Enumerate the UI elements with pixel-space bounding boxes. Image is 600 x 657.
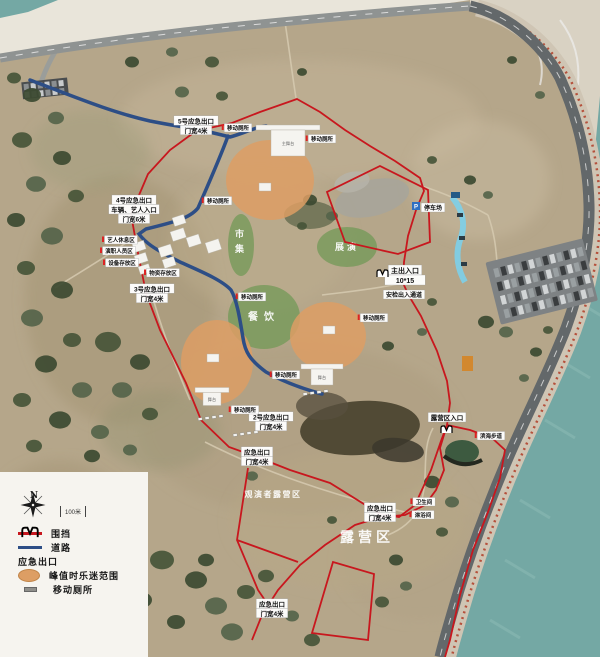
exit-bottom-label: 应急出口门宽4米 <box>256 599 287 618</box>
svg-text:观演者露营区: 观演者露营区 <box>245 489 302 499</box>
control-booth-3 <box>323 326 335 334</box>
legend-label-exit: 应急出口 <box>18 555 58 568</box>
fan-range-zone-3 <box>290 302 366 370</box>
svg-text:移动厕所: 移动厕所 <box>363 314 386 322</box>
toilet-label-6: 移动厕所 <box>306 135 336 144</box>
coast-path-label: 滨海步道 <box>475 432 505 441</box>
svg-text:10*15: 10*15 <box>396 278 414 285</box>
legend-label-toilet: 移动厕所 <box>53 583 93 596</box>
svg-text:设备存放区: 设备存放区 <box>108 259 136 267</box>
legend-panel: N 100米 围挡 道路 <box>0 472 148 657</box>
svg-text:演职人员区: 演职人员区 <box>105 247 133 255</box>
road-line-swatch <box>18 546 42 549</box>
compass-star-icon <box>20 492 46 518</box>
festival-site-map: 市集展演餐饮主舞台舞台舞台5号应急出口门宽4米4号应急出口车辆、艺人入口门宽6米… <box>0 0 600 657</box>
svg-text:停车场: 停车场 <box>424 204 442 212</box>
svg-text:应急出口: 应急出口 <box>259 599 285 608</box>
svg-text:移动厕所: 移动厕所 <box>311 135 334 143</box>
control-booth-2 <box>207 354 219 362</box>
exit-5-label: 5号应急出口门宽4米 <box>174 116 218 135</box>
legend-row-exit: 应急出口 <box>18 555 119 568</box>
toilet-label-1: 移动厕所 <box>202 197 232 206</box>
toilet-label-3: 移动厕所 <box>358 314 388 323</box>
fan-range-icon <box>18 569 40 582</box>
svg-text:车辆、艺人入口: 车辆、艺人入口 <box>111 205 157 214</box>
svg-text:门宽6米: 门宽6米 <box>122 215 146 224</box>
toilet-label-5: 移动厕所 <box>270 371 300 380</box>
legend-row-road: 道路 <box>18 541 119 554</box>
toilet-dash-icon <box>24 587 37 592</box>
svg-text:应急出口: 应急出口 <box>367 503 393 512</box>
legend-label-road: 道路 <box>51 541 71 554</box>
legend-row-fan-range: 峰值时乐迷范围 <box>18 569 119 582</box>
camp-facility-label-1: 卫生间 <box>410 498 435 507</box>
backstage-label-2: 演职人员区 <box>100 247 135 256</box>
svg-text:门宽4米: 门宽4米 <box>245 457 269 466</box>
exit-3-label: 3号应急出口门宽4米 <box>130 284 174 303</box>
svg-text:淋浴间: 淋浴间 <box>415 511 432 519</box>
svg-text:门宽4米: 门宽4米 <box>140 294 164 303</box>
emergency-exit-icon <box>18 526 42 538</box>
backstage-label-1: 艺人休息区 <box>102 236 137 245</box>
svg-text:应急出口: 应急出口 <box>244 447 270 456</box>
legend-row-toilet: 移动厕所 <box>18 583 119 596</box>
svg-text:主出入口: 主出入口 <box>391 266 419 275</box>
camping-area-label: 露营区 <box>340 529 394 545</box>
svg-text:餐饮: 餐饮 <box>247 310 280 323</box>
toilet-label-4: 移动厕所 <box>229 406 259 415</box>
svg-text:露营区: 露营区 <box>340 529 394 545</box>
camping-sub-label: 观演者露营区 <box>245 489 302 499</box>
svg-text:主舞台: 主舞台 <box>282 140 295 147</box>
svg-text:舞台: 舞台 <box>208 396 216 403</box>
camp-facility-label-2: 淋浴间 <box>409 511 434 520</box>
exit-south-label: 应急出口门宽4米 <box>241 447 272 466</box>
svg-text:滨海步道: 滨海步道 <box>480 432 503 440</box>
exit-camp-label: 应急出口门宽4米 <box>364 503 395 522</box>
svg-text:安检出入通道: 安检出入通道 <box>386 291 422 299</box>
svg-text:物资存放区: 物资存放区 <box>149 269 177 277</box>
security-channel-label: 安检出入通道 <box>383 290 424 299</box>
svg-text:门宽4米: 门宽4米 <box>259 422 283 431</box>
green-zone-市集: 市集 <box>228 214 254 276</box>
legend-items: 围挡 道路 应急出口 峰值时乐迷范围 移动厕所 <box>18 526 119 597</box>
svg-text:3号应急出口: 3号应急出口 <box>134 284 170 293</box>
svg-text:移动厕所: 移动厕所 <box>207 197 230 205</box>
backstage-label-4: 物资存放区 <box>144 269 179 278</box>
svg-text:移动厕所: 移动厕所 <box>275 371 298 379</box>
svg-text:移动厕所: 移动厕所 <box>227 124 250 132</box>
svg-text:艺人休息区: 艺人休息区 <box>107 236 135 244</box>
svg-text:5号应急出口: 5号应急出口 <box>178 116 214 125</box>
toilet-label-2: 移动厕所 <box>236 293 266 302</box>
svg-text:P: P <box>414 205 418 211</box>
backstage-label-3: 设备存放区 <box>103 259 138 268</box>
exit-2-label: 2号应急出口门宽4米 <box>249 412 293 431</box>
legend-label-fence: 围挡 <box>51 527 71 540</box>
svg-text:露营区入口: 露营区入口 <box>431 413 464 422</box>
svg-text:门宽4米: 门宽4米 <box>368 513 392 522</box>
toilet-label-7: 移动厕所 <box>222 124 252 133</box>
control-booth-1 <box>259 183 271 191</box>
scale-bar-label: 100米 <box>65 510 81 516</box>
svg-text:卫生间: 卫生间 <box>416 498 433 506</box>
svg-text:门宽4米: 门宽4米 <box>184 126 208 135</box>
compass-rose: N <box>20 492 48 501</box>
scale-bar: 100米 <box>60 506 86 517</box>
watch-tower <box>462 356 473 371</box>
svg-text:移动厕所: 移动厕所 <box>234 406 257 414</box>
legend-label-fan-range: 峰值时乐迷范围 <box>49 569 119 582</box>
svg-text:4号应急出口: 4号应急出口 <box>116 196 152 205</box>
svg-text:移动厕所: 移动厕所 <box>241 293 264 301</box>
svg-text:门宽4米: 门宽4米 <box>260 609 284 618</box>
svg-text:舞台: 舞台 <box>318 374 326 381</box>
